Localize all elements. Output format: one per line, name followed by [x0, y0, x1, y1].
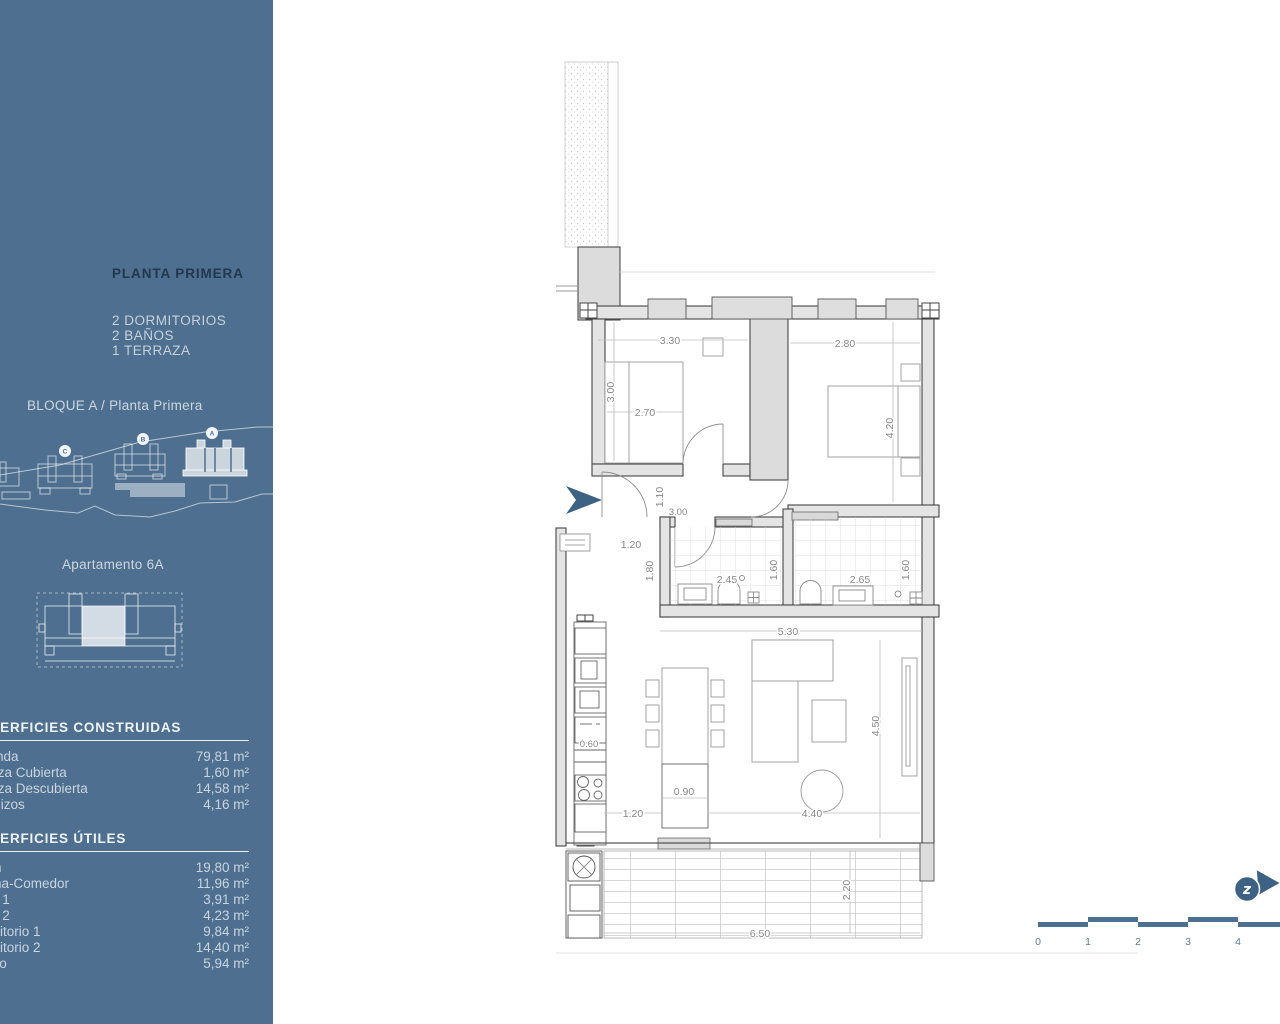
- heading-text: SUPERFICIES CONSTRUIDAS: [0, 720, 249, 735]
- scale-bar: 0 1 2 3 4: [1035, 917, 1280, 948]
- badge-letter: C: [63, 449, 68, 456]
- surface-value: 3,91 m²: [203, 892, 249, 908]
- dimension-label: 1.20: [623, 808, 644, 820]
- wardrobe-shaft: [750, 306, 788, 480]
- heading-text: SUPERFICIES ÚTILES: [0, 831, 249, 846]
- highlighted-block-a: [183, 440, 247, 476]
- highlighted-unit: [82, 606, 125, 646]
- feature-list: 2 DORMITORIOS 2 BAÑOS 1 TERRAZA: [112, 313, 226, 358]
- site-road: [115, 483, 185, 497]
- dimension-label: 3.00: [669, 507, 688, 518]
- surface-row: Baño 2 4,23 m²: [0, 908, 249, 924]
- surface-label: Voladizos: [0, 797, 25, 813]
- surface-label: Vivienda: [0, 749, 19, 765]
- scale-label: 1: [1085, 936, 1091, 948]
- surface-value: 79,81 m²: [196, 749, 249, 765]
- dimension-label: 2.45: [717, 574, 738, 586]
- utility-corner: [566, 851, 602, 938]
- dimension-label: 1.20: [621, 539, 642, 551]
- surface-label: Baño 1: [0, 892, 10, 908]
- dimension-label: 1.10: [654, 487, 666, 508]
- dimension-label: 3.00: [605, 382, 617, 403]
- dimension-label: 4.20: [884, 418, 896, 439]
- surface-value: 4,16 m²: [203, 797, 249, 813]
- terrace: [566, 843, 934, 938]
- dimension-label: 2.20: [841, 880, 853, 901]
- apartment-label: Apartamento 6A: [62, 557, 164, 572]
- surface-label: Pasillo: [0, 956, 7, 972]
- block-label: BLOQUE A / Planta Primera: [27, 398, 203, 413]
- feature-terrace: 1 TERRAZA: [112, 343, 226, 358]
- surface-label: Terraza Descubierta: [0, 781, 88, 797]
- surface-label: Terraza Cubierta: [0, 765, 67, 781]
- dimension-label: 1.60: [768, 560, 780, 581]
- surface-row: Dormitorio 1 9,84 m²: [0, 924, 249, 940]
- scale-label: 3: [1185, 936, 1191, 948]
- dimension-label: 2.70: [635, 407, 656, 419]
- surface-row: Dormitorio 2 14,40 m²: [0, 940, 249, 956]
- floor-title: PLANTA PRIMERA: [112, 266, 244, 281]
- kitchen-units: [574, 622, 606, 845]
- exterior-basin: [560, 534, 590, 551]
- apartment-position-diagram: [25, 584, 195, 676]
- dimension-label: 2.65: [850, 574, 871, 586]
- surfaces-useful-section: SUPERFICIES ÚTILES Salón 19,80 m² Cocina…: [0, 831, 249, 972]
- north-letter: z: [1242, 882, 1252, 898]
- surface-value: 14,40 m²: [196, 940, 249, 956]
- surface-label: Baño 2: [0, 908, 10, 924]
- dimension-label: 5.30: [778, 626, 799, 638]
- surface-label: Dormitorio 1: [0, 924, 41, 940]
- surface-row: Terraza Descubierta 14,58 m²: [0, 781, 249, 797]
- dimension-label: 0.60: [580, 739, 599, 750]
- badge-letter: A: [210, 431, 215, 438]
- surfaces-useful-heading: SUPERFICIES ÚTILES: [0, 831, 249, 852]
- feature-bathrooms: 2 BAÑOS: [112, 328, 226, 343]
- dimension-label: 4.40: [802, 808, 823, 820]
- scale-label: 2: [1135, 936, 1141, 948]
- dimension-label: 0.90: [674, 786, 695, 798]
- feature-bedrooms: 2 DORMITORIOS: [112, 313, 226, 328]
- surface-label: Salón: [0, 860, 2, 876]
- scale-label: 4: [1235, 936, 1241, 948]
- surface-row: Vivienda 79,81 m²: [0, 749, 249, 765]
- dimension-label: 1.80: [644, 561, 656, 582]
- north-arrow-logo: z: [1235, 869, 1280, 902]
- dimension-label: 6.50: [750, 928, 771, 940]
- surface-row: Voladizos 4,16 m²: [0, 797, 249, 813]
- surface-row: Baño 1 3,91 m²: [0, 892, 249, 908]
- surface-row: Salón 19,80 m²: [0, 860, 249, 876]
- surface-value: 11,96 m²: [197, 876, 249, 892]
- surface-value: 1,60 m²: [203, 765, 249, 781]
- dimension-label: 3.30: [660, 335, 681, 347]
- surface-value: 19,80 m²: [196, 860, 249, 876]
- surface-value: 9,84 m²: [203, 924, 249, 940]
- entrance-arrow-icon: [566, 486, 602, 514]
- dimension-label: 4.50: [870, 716, 882, 737]
- surface-row: Pasillo 5,94 m²: [0, 956, 249, 972]
- site-plan-diagram: C B A: [0, 418, 273, 520]
- bedroom2-furniture: [828, 364, 920, 476]
- surface-row: Terraza Cubierta 1,60 m²: [0, 765, 249, 781]
- surface-value: 4,23 m²: [203, 908, 249, 924]
- surfaces-constructed-section: SUPERFICIES CONSTRUIDAS Vivienda 79,81 m…: [0, 720, 249, 813]
- bedroom1-furniture: [605, 338, 723, 463]
- badge-letter: B: [141, 437, 146, 444]
- dimension-label: 1.60: [900, 560, 912, 581]
- dimension-label: 2.80: [835, 338, 856, 350]
- surface-value: 5,94 m²: [203, 956, 249, 972]
- surface-label: Dormitorio 2: [0, 940, 41, 956]
- surface-label: Cocina-Comedor: [0, 876, 69, 892]
- scale-label: 0: [1035, 936, 1041, 948]
- info-sidebar: PLANTA PRIMERA 2 DORMITORIOS 2 BAÑOS 1 T…: [0, 0, 273, 1024]
- surfaces-constructed-heading: SUPERFICIES CONSTRUIDAS: [0, 720, 249, 741]
- surface-row: Cocina-Comedor 11,96 m²: [0, 876, 249, 892]
- surface-value: 14,58 m²: [196, 781, 249, 797]
